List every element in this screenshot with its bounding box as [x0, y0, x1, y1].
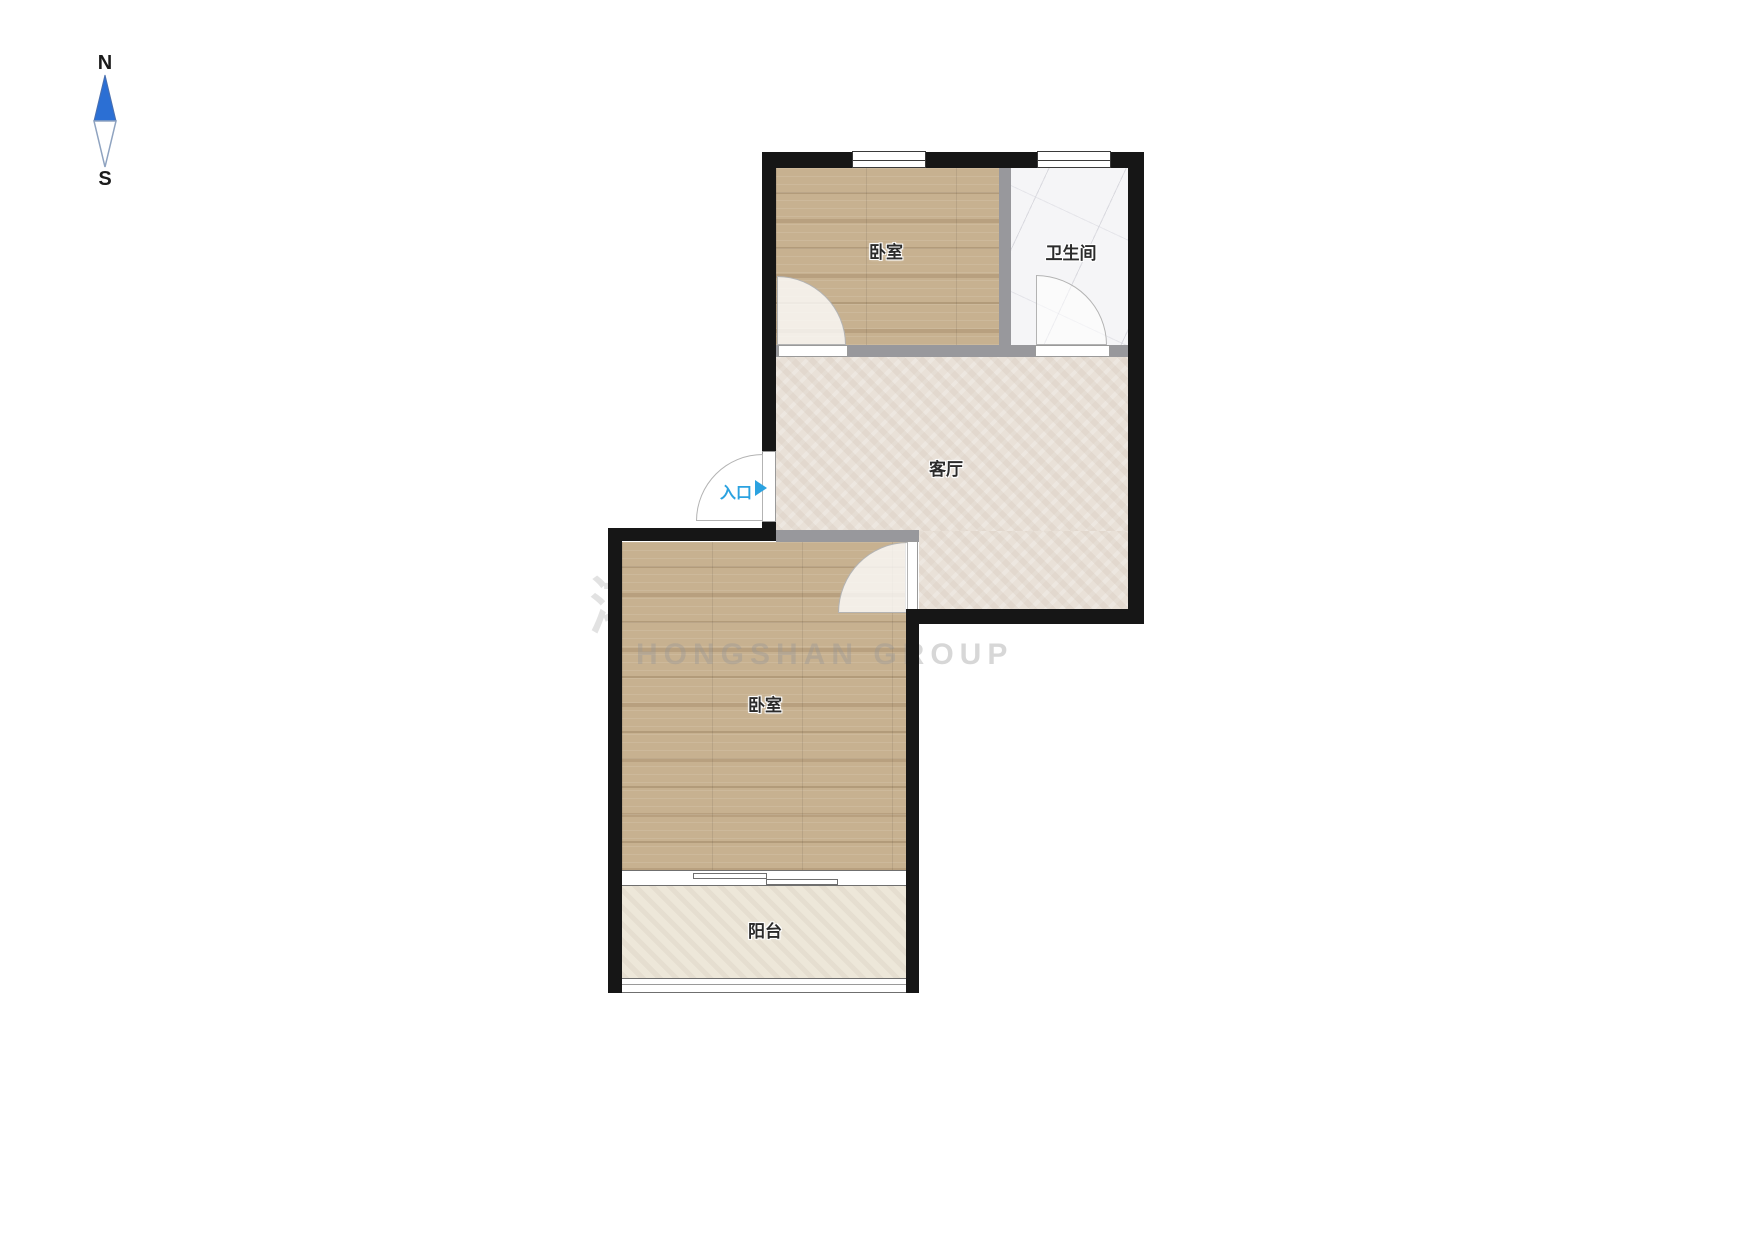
sliding-door-panel-right — [766, 879, 838, 885]
wall-lower-left — [608, 528, 622, 993]
balcony-railing — [622, 978, 906, 993]
compass: N S — [82, 52, 128, 190]
door-leaf-bathroom — [1035, 345, 1110, 357]
wall-living-bottom — [906, 609, 1144, 624]
entrance-label: 入口 — [700, 479, 752, 503]
label-bedroom-upper: 卧室 — [846, 238, 926, 263]
compass-south-label: S — [82, 168, 128, 190]
wall-lower-top — [608, 528, 776, 541]
wall-lower-right — [906, 609, 919, 993]
label-living-room: 客厅 — [906, 455, 986, 480]
label-bedroom-lower: 卧室 — [725, 691, 805, 716]
watermark-company-text: HONGSHAN GROUP — [636, 638, 1056, 672]
wall-upper-left — [762, 152, 776, 451]
sliding-door-balcony — [622, 870, 906, 886]
compass-north-label: N — [82, 52, 128, 74]
label-bathroom: 卫生间 — [1021, 239, 1121, 264]
compass-needle-icon — [89, 74, 121, 168]
wall-right — [1128, 152, 1144, 624]
wall-bedroom-bathroom-divider — [999, 168, 1011, 345]
label-balcony: 阳台 — [725, 917, 805, 942]
wall-living-bedroom-lower — [776, 530, 919, 542]
room-living-floor-upper — [776, 357, 1130, 531]
sliding-door-panel-left — [693, 873, 767, 879]
entrance-arrow-icon — [755, 480, 767, 496]
door-leaf-bedroom-upper — [778, 345, 848, 357]
floorplan-canvas: N S 鸿山集团 HONGSHAN GROUP — [0, 0, 1754, 1240]
room-living-floor-lower — [919, 531, 1130, 609]
window-bathroom — [1037, 151, 1111, 168]
window-bedroom-upper — [852, 151, 926, 168]
wall-below-entrance — [762, 522, 776, 541]
